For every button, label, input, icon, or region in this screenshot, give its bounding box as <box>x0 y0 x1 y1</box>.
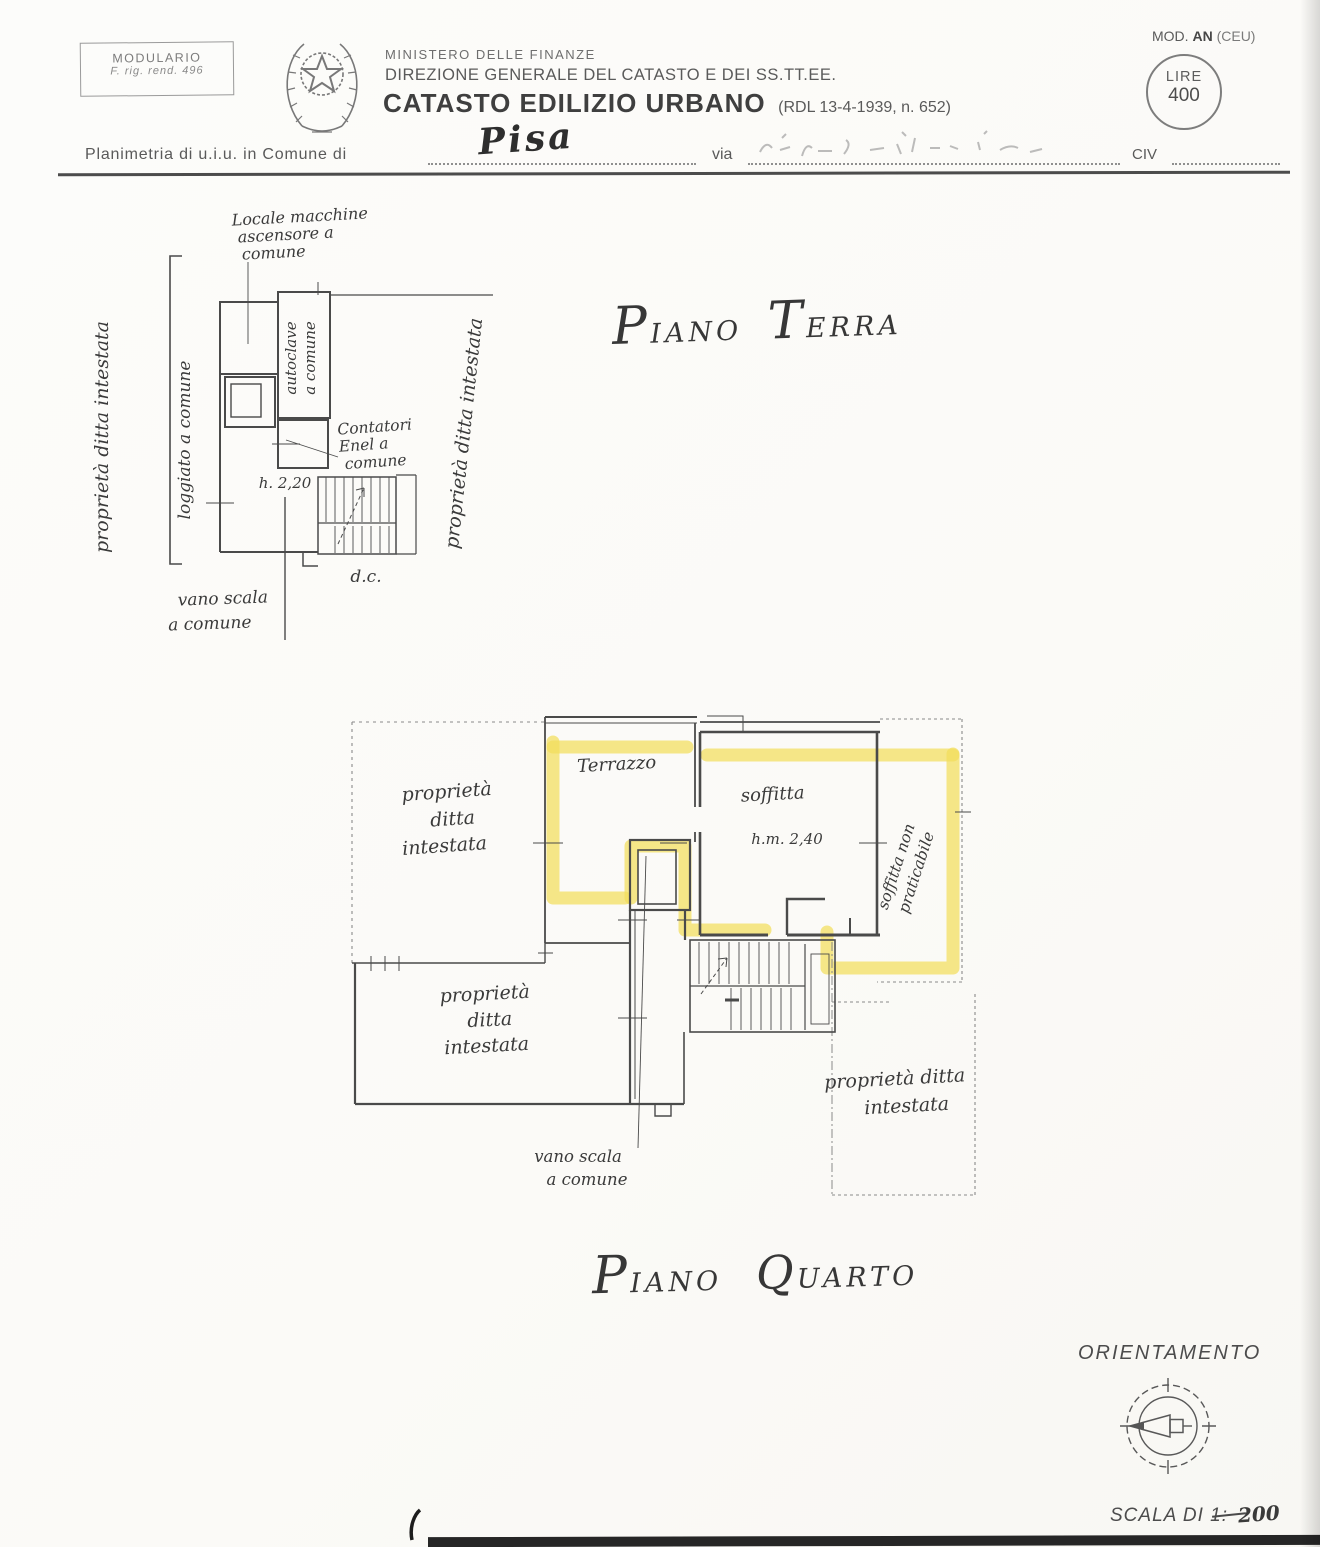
stairs-hatch-lower <box>731 988 791 1030</box>
title-rest: ERRA <box>805 310 902 344</box>
label-soffitta-h: h.m. 2,40 <box>751 830 823 848</box>
label-vano-scala-1: vano scala <box>177 587 268 610</box>
mod-an-label: MOD. AN (CEU) <box>1152 28 1255 44</box>
label-prop-alto-sx-2: ditta <box>429 806 475 831</box>
label-locale-macchine-3: comune <box>241 241 306 263</box>
piano-terra-title: PIANO TERRA <box>611 297 902 351</box>
direzione-label: DIREZIONE GENERALE DEL CATASTO E DEI SS.… <box>385 66 836 85</box>
hall-notch <box>303 552 318 566</box>
label-loggiato: loggiato a comune <box>175 361 195 520</box>
scala-label: SCALA DI 1: <box>1110 1505 1228 1526</box>
scanned-document-page: MODULARIO F. rig. rend. 496 MINISTERO DE… <box>0 0 1320 1547</box>
stairs-divider <box>690 944 805 1030</box>
piano-quarto-floorplan: proprietà ditta intestata Terrazzo soffi… <box>335 692 995 1212</box>
italy-emblem-icon <box>272 28 372 140</box>
mod-suffix: (CEU) <box>1217 28 1256 44</box>
label-autoclave-1: autoclave <box>282 321 300 394</box>
mod-bold: AN <box>1192 28 1212 44</box>
title-initial: P <box>591 1245 631 1306</box>
civ-label: CIV <box>1132 146 1157 163</box>
stairs-landing <box>318 475 416 554</box>
dashed-boundary-bottom-right <box>832 992 975 1195</box>
elevator-car <box>638 850 676 904</box>
ministero-label: MINISTERO DELLE FINANZE <box>385 47 596 62</box>
label-prop-alto-sx-3: intestata <box>401 832 487 860</box>
stairs-hatch-upper <box>699 942 789 984</box>
civ-dotted-line <box>1172 162 1280 165</box>
header-rule <box>58 171 1290 177</box>
stairs-arrow-head <box>356 488 364 497</box>
title-rest: IANO <box>650 316 743 350</box>
orientamento-label: ORIENTAMENTO <box>1078 1342 1261 1365</box>
stairs-hatch-lower <box>335 526 389 553</box>
comune-handwritten-value: Pisa <box>477 115 576 164</box>
label-proprieta-sx: proprietà ditta intestata <box>91 321 113 553</box>
label-prop-basso-sx-2: ditta <box>467 1008 513 1032</box>
leader-contatori <box>286 440 338 457</box>
label-soffitta: soffitta <box>740 782 805 806</box>
title-initial: P <box>611 296 651 357</box>
room-locale-macchine <box>220 302 278 374</box>
label-prop-basso-sx-1: proprietà <box>439 981 530 1008</box>
elevator-car <box>231 384 261 417</box>
label-prop-basso-dx-2: intestata <box>864 1093 950 1119</box>
catasto-ref: (RDL 13-4-1939, n. 652) <box>778 99 951 116</box>
hall-walls <box>220 374 318 552</box>
title-rest: IANO <box>630 1266 723 1299</box>
title-initial: Q <box>755 1245 797 1300</box>
stairs-outline <box>318 477 396 554</box>
label-terrazzo: Terrazzo <box>577 752 657 777</box>
comune-dotted-line <box>428 162 696 165</box>
title-rest: UARTO <box>797 1261 919 1295</box>
stairs-hatch-upper <box>326 477 389 522</box>
label-prop-alto-sx-1: proprietà <box>401 778 493 806</box>
catasto-title: CATASTO EDILIZIO URBANO <box>383 88 766 118</box>
shaft-walls-down <box>630 910 685 1104</box>
soffitta-wall-stub <box>787 899 825 935</box>
parapet-notch <box>707 716 743 732</box>
mod-prefix: MOD. <box>1152 28 1189 44</box>
label-autoclave-2: a comune <box>301 321 319 395</box>
lire-label: LIRE <box>1148 69 1220 85</box>
stairs-arrow <box>338 488 364 544</box>
planimetria-label: Planimetria di u.i.u. in Comune di <box>85 146 347 164</box>
label-vano-scala-q-2: a comune <box>547 1170 628 1189</box>
lire-stamp: LIRE 400 <box>1146 54 1222 130</box>
scan-edge-bar <box>428 1535 1320 1547</box>
compass-icon <box>1118 1376 1218 1476</box>
piano-terra-floorplan: Locale macchine ascensore a comune autoc… <box>78 192 508 662</box>
scala-row: SCALA DI 1: 200 <box>1110 1502 1280 1527</box>
label-proprieta-dx: proprietà ditta intestata <box>441 317 487 550</box>
label-contatori-3: comune <box>344 451 407 473</box>
title-initial: T <box>767 290 807 351</box>
modulario-stamp-box: MODULARIO F. rig. rend. 496 <box>80 41 235 97</box>
label-vano-scala-2: a comune <box>168 613 252 636</box>
label-altezza: h. 2,20 <box>259 474 312 492</box>
shaft-notch <box>655 1104 671 1116</box>
label-dc: d.c. <box>350 567 381 587</box>
piano-quarto-title: PIANO QUARTO <box>591 1248 918 1301</box>
stairs-arrow <box>701 958 727 994</box>
modulario-line2: F. rig. rend. 496 <box>81 64 233 78</box>
via-handwriting-illegible <box>752 126 1102 164</box>
label-vano-scala-q-1: vano scala <box>534 1147 622 1166</box>
label-prop-basso-sx-3: intestata <box>444 1033 530 1059</box>
catasto-title-row: CATASTO EDILIZIO URBANO (RDL 13-4-1939, … <box>383 88 951 119</box>
scan-edge-shadow <box>1300 0 1320 1547</box>
lire-value: 400 <box>1148 85 1220 107</box>
label-prop-basso-dx-1: proprietà ditta <box>824 1064 966 1093</box>
via-label: via <box>712 146 732 164</box>
